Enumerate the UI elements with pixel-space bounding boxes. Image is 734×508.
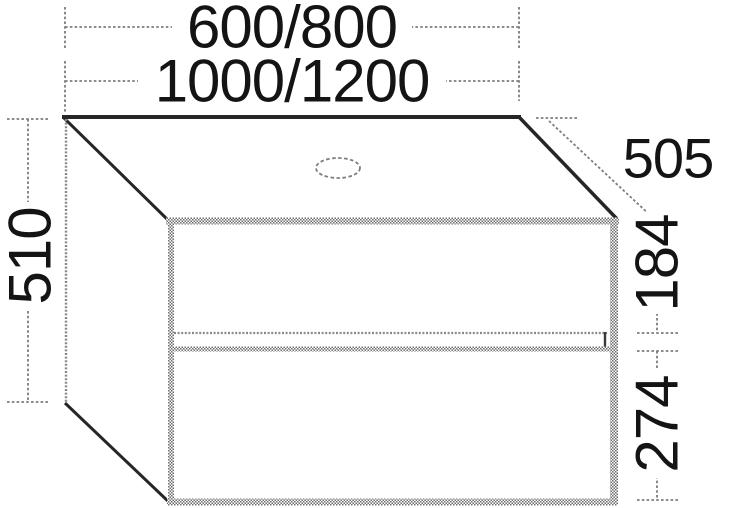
- top-left-depth-edge: [64, 118, 169, 221]
- drawing-canvas: 600/800 1000/1200 510 505: [0, 0, 734, 508]
- dimension-label-upper-drawer: 184: [624, 214, 691, 311]
- dimension-label-depth: 505: [623, 127, 713, 190]
- cabinet-outline: [62, 117, 619, 505]
- top-right-depth-edge: [519, 117, 618, 220]
- dimension-label-height-total: 510: [0, 207, 64, 304]
- left-bottom-depth-edge: [65, 403, 171, 504]
- dimension-label-lower-drawer: 274: [624, 375, 691, 472]
- technical-drawing: 600/800 1000/1200 510 505: [0, 0, 734, 508]
- dimension-label-width-b: 1000/1200: [155, 48, 430, 115]
- drawer-divider-groove: [174, 332, 610, 349]
- tap-hole-icon: [316, 158, 360, 178]
